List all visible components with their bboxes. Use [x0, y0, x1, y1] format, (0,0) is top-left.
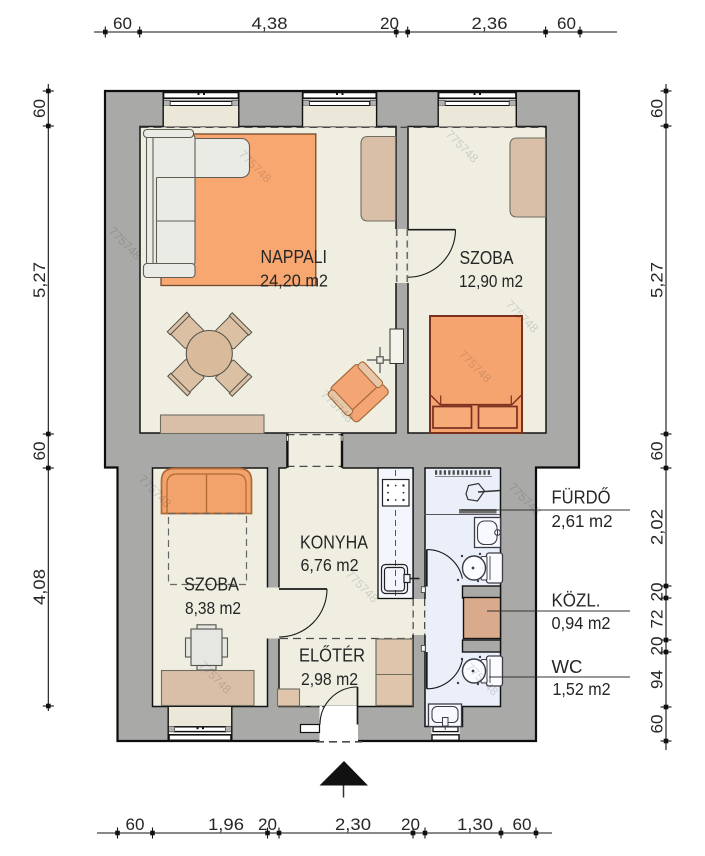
svg-text:2,36: 2,36 [472, 14, 508, 33]
svg-text:20: 20 [648, 637, 667, 656]
svg-text:NAPPALI: NAPPALI [261, 246, 328, 267]
svg-text:8,38 m2: 8,38 m2 [185, 598, 241, 618]
svg-text:60: 60 [557, 14, 576, 33]
svg-text:2,98 m2: 2,98 m2 [301, 669, 358, 689]
svg-text:2,02: 2,02 [648, 509, 667, 545]
svg-text:ELŐTÉR: ELŐTÉR [299, 645, 365, 666]
svg-text:4,08: 4,08 [30, 569, 49, 605]
svg-text:72: 72 [648, 610, 667, 629]
svg-text:KONYHA: KONYHA [300, 532, 369, 553]
svg-text:60: 60 [513, 815, 532, 834]
svg-text:20: 20 [648, 583, 667, 602]
svg-text:60: 60 [648, 715, 667, 734]
svg-text:94: 94 [648, 670, 667, 689]
svg-text:4,38: 4,38 [252, 14, 288, 33]
svg-text:20: 20 [258, 815, 277, 834]
svg-text:FÜRDŐ: FÜRDŐ [552, 487, 611, 508]
svg-text:5,27: 5,27 [648, 262, 667, 298]
svg-text:2,30: 2,30 [335, 815, 371, 834]
svg-text:1,30: 1,30 [457, 815, 493, 834]
svg-text:1,96: 1,96 [208, 815, 244, 834]
svg-text:SZOBA: SZOBA [460, 247, 515, 268]
svg-text:60: 60 [30, 442, 49, 461]
svg-text:20: 20 [401, 815, 420, 834]
svg-text:60: 60 [648, 442, 667, 461]
svg-text:24,20 m2: 24,20 m2 [260, 271, 328, 291]
svg-text:12,90 m2: 12,90 m2 [459, 271, 523, 291]
svg-text:60: 60 [113, 14, 132, 33]
svg-text:5,27: 5,27 [30, 262, 49, 298]
svg-text:20: 20 [380, 14, 399, 33]
svg-text:60: 60 [648, 99, 667, 118]
svg-text:60: 60 [126, 815, 145, 834]
svg-text:60: 60 [30, 99, 49, 118]
svg-text:KÖZL.: KÖZL. [552, 590, 601, 611]
svg-text:1,52 m2: 1,52 m2 [553, 679, 611, 699]
svg-text:2,61 m2: 2,61 m2 [552, 511, 613, 531]
svg-text:SZOBA: SZOBA [184, 574, 240, 595]
svg-text:0,94 m2: 0,94 m2 [552, 613, 611, 633]
svg-text:WC: WC [552, 656, 583, 677]
